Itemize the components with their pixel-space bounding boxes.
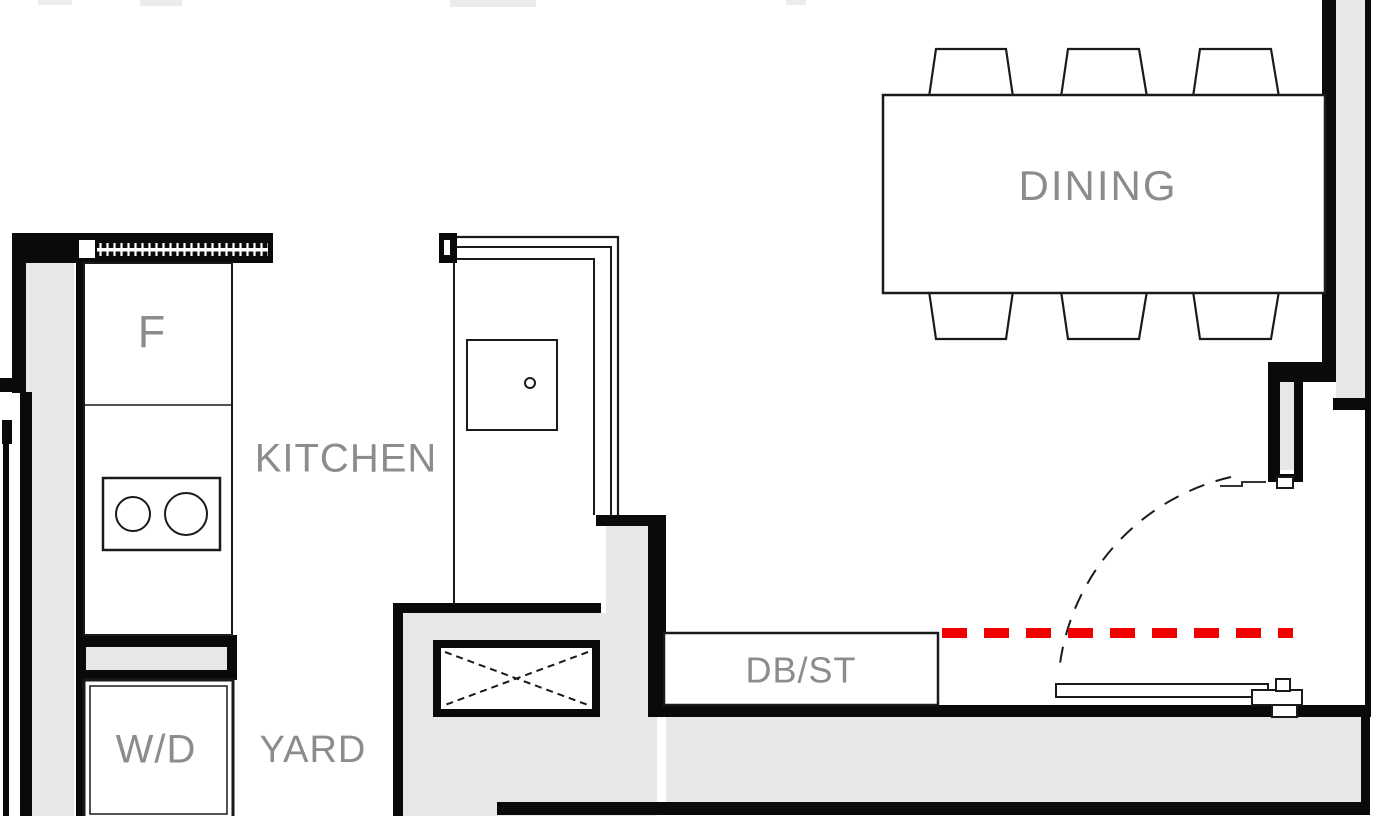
mid-stub-core <box>86 647 227 670</box>
burner-small-icon <box>116 497 150 531</box>
floor-plan: F KITCHEN DINING W/D YARD DB/ST <box>0 0 1376 816</box>
left-wall-core-upper <box>26 258 74 393</box>
dining-label: DINING <box>1019 162 1178 209</box>
column-core <box>606 526 648 706</box>
right-wall-core <box>1336 0 1366 400</box>
left-outer-line <box>3 444 9 816</box>
door-stub-core <box>1280 382 1294 470</box>
counter-post-slot <box>444 240 450 255</box>
chair-icon <box>929 291 1013 339</box>
chair-icon <box>1193 49 1279 97</box>
chair-icon <box>1061 49 1147 97</box>
door-swing-arc <box>1059 477 1231 672</box>
door-stub-face-right <box>1294 382 1303 482</box>
chair-icon <box>929 49 1013 97</box>
door <box>1056 477 1302 717</box>
sink <box>467 340 557 430</box>
mid-stub-cap <box>227 635 237 680</box>
door-jamb-bottom-notch-up <box>1276 679 1290 691</box>
left-edge-jamb <box>2 420 12 444</box>
floor-plan-page: F KITCHEN DINING W/D YARD DB/ST <box>0 0 1376 816</box>
window-screen-ticks <box>97 243 268 256</box>
db-st-label: DB/ST <box>745 650 856 691</box>
washer-dryer-label: W/D <box>116 728 197 772</box>
bottom-wall-strip <box>666 717 1363 803</box>
door-stub-face-left <box>1268 382 1280 482</box>
door-jamb-bottom-notch-down <box>1272 705 1297 717</box>
door-jamb-top-notch <box>1277 477 1293 488</box>
bottom-wall-lower <box>497 802 1370 815</box>
right-outer-line <box>1365 0 1371 717</box>
chair-icon <box>1061 291 1147 339</box>
sink-drain-icon <box>525 378 535 388</box>
yard-label: YARD <box>260 729 367 771</box>
bottom-right-connector <box>1361 705 1370 815</box>
left-wall-core-lower <box>32 392 74 816</box>
right-core-cap <box>1333 398 1366 410</box>
lower-left-wall-vertical <box>393 603 403 816</box>
bottom-wall-upper <box>657 705 1368 717</box>
chair-icon <box>1193 291 1279 339</box>
kitchen-label: KITCHEN <box>255 437 438 481</box>
door-arc-connector <box>1220 482 1266 486</box>
window-frame-block <box>79 240 95 258</box>
lower-left-wall-horizontal <box>393 603 601 613</box>
left-wall-face-lower <box>20 392 32 816</box>
burner-large-icon <box>165 493 207 535</box>
right-wall-jog <box>1268 362 1336 382</box>
door-jamb-bottom <box>1252 690 1302 705</box>
fridge-label: F <box>138 306 167 357</box>
mid-stub-top <box>76 635 237 647</box>
door-leaf <box>1056 684 1268 697</box>
